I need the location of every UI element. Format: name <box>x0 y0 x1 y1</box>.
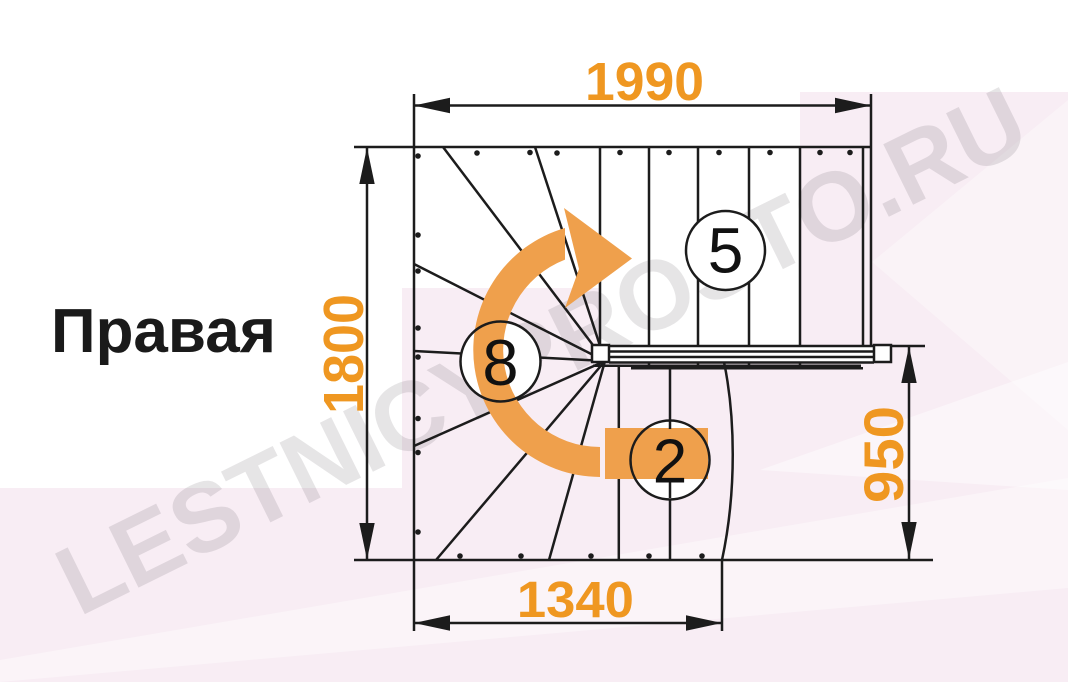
svg-text:1800: 1800 <box>312 294 376 414</box>
svg-text:5: 5 <box>708 215 744 287</box>
svg-text:1340: 1340 <box>517 571 634 628</box>
svg-text:8: 8 <box>482 326 518 399</box>
svg-text:Правая: Правая <box>51 297 276 366</box>
svg-text:1990: 1990 <box>585 52 704 112</box>
svg-text:2: 2 <box>653 428 687 497</box>
svg-text:950: 950 <box>852 406 915 503</box>
